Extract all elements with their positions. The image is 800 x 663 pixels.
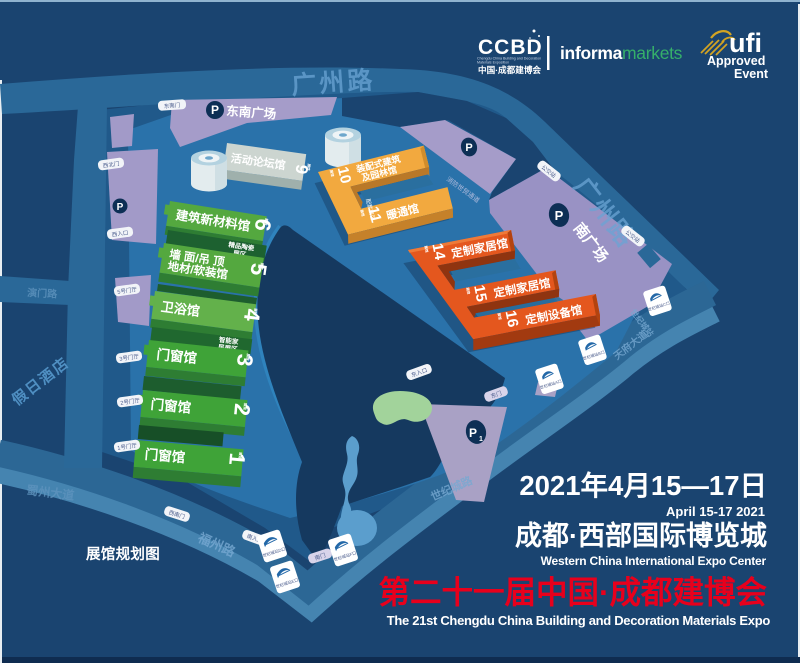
svg-text:P: P — [117, 202, 124, 213]
svg-text:成都·西部国际博览城: 成都·西部国际博览城 — [515, 520, 767, 551]
svg-text:展馆规划图: 展馆规划图 — [86, 545, 160, 563]
svg-text:2: 2 — [229, 402, 255, 417]
svg-text:The 21st Chengdu China Buildin: The 21st Chengdu China Building and Deco… — [387, 613, 771, 628]
svg-text:广州路: 广州路 — [290, 65, 376, 100]
svg-text:15: 15 — [470, 284, 490, 304]
svg-text:展馆: 展馆 — [243, 402, 249, 411]
svg-text:2021年4月15—17日: 2021年4月15—17日 — [519, 470, 767, 501]
svg-text:Event: Event — [734, 67, 769, 81]
svg-text:Approved: Approved — [707, 54, 765, 68]
svg-text:展馆: 展馆 — [245, 352, 251, 361]
svg-text:P: P — [555, 208, 564, 223]
svg-text:Materials Exposition: Materials Exposition — [477, 61, 509, 65]
svg-text:April 15-17 2021: April 15-17 2021 — [666, 504, 765, 519]
svg-text:3: 3 — [232, 353, 258, 368]
svg-text:P: P — [469, 426, 477, 440]
svg-text:Western China International Ex: Western China International Expo Center — [541, 554, 767, 568]
svg-text:展馆: 展馆 — [238, 451, 244, 460]
svg-text:1: 1 — [224, 452, 250, 466]
svg-text:markets: markets — [622, 43, 683, 63]
svg-text:中国·成都建博会: 中国·成都建博会 — [478, 64, 541, 75]
svg-text:informa: informa — [560, 43, 623, 63]
svg-text:P: P — [465, 142, 472, 154]
svg-text:P: P — [211, 103, 219, 117]
svg-text:1: 1 — [479, 436, 483, 443]
svg-text:16: 16 — [502, 309, 522, 329]
svg-text:第二十一届中国·成都建博会: 第二十一届中国·成都建博会 — [379, 574, 768, 610]
